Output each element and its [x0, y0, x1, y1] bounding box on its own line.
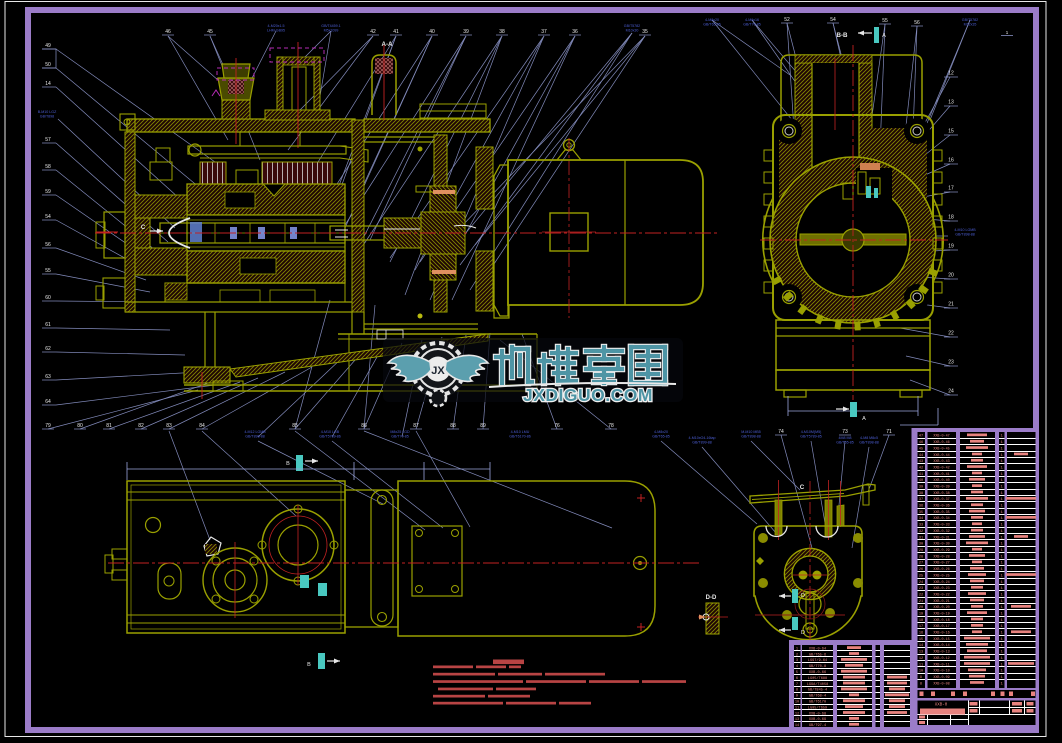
- svg-text:4-M10xO4-16tap: 4-M10xO4-16tap: [689, 436, 716, 440]
- svg-text:63: 63: [45, 374, 51, 380]
- svg-text:55: 55: [882, 18, 888, 24]
- svg-text:55: 55: [45, 268, 51, 274]
- svg-text:XXB-0-36: XXB-0-36: [933, 505, 949, 509]
- svg-text:4: 4: [796, 665, 798, 669]
- svg-text:JX: JX: [431, 365, 445, 377]
- svg-text:XXB-0-64: XXB-0-64: [809, 647, 826, 651]
- svg-text:4-M10 LMU: 4-M10 LMU: [511, 430, 530, 434]
- svg-text:XXB-0-35: XXB-0-35: [933, 511, 949, 515]
- svg-text:76: 76: [554, 423, 560, 429]
- svg-text:M8x25 LGD: M8x25 LGD: [390, 430, 410, 434]
- svg-text:43: 43: [919, 460, 923, 464]
- svg-text:14: 14: [795, 724, 799, 728]
- svg-text:84: 84: [199, 423, 205, 429]
- svg-text:86: 86: [361, 423, 367, 429]
- svg-text:GB/T898: GB/T898: [40, 115, 54, 119]
- svg-text:XXB-0-66: XXB-0-66: [809, 671, 826, 675]
- svg-text:XXB-0-28: XXB-0-28: [933, 555, 949, 559]
- svg-text:GB/T70-85: GB/T70-85: [391, 435, 409, 439]
- svg-text:24: 24: [948, 389, 954, 395]
- svg-text:XXB-0-37: XXB-0-37: [933, 498, 949, 502]
- svg-text:XXB-0-17: XXB-0-17: [933, 625, 949, 629]
- svg-text:GB/T97-4: GB/T97-4: [809, 723, 826, 728]
- svg-text:4M8 M8: 4M8 M8: [839, 436, 852, 440]
- svg-text:5: 5: [796, 671, 798, 675]
- svg-text:GB/T65-6: GB/T65-6: [809, 652, 826, 657]
- svg-text:GB/T5789-86: GB/T5789-86: [319, 435, 341, 439]
- svg-text:D: D: [801, 630, 805, 636]
- svg-text:71: 71: [886, 429, 892, 435]
- svg-text:LG9A/T4058: LG9A/T4058: [807, 682, 829, 687]
- svg-text:XXB-0-40: XXB-0-40: [933, 479, 949, 483]
- svg-text:GB/T5789-85: GB/T5789-85: [800, 435, 822, 439]
- svg-text:XXB-0-19: XXB-0-19: [933, 613, 949, 617]
- svg-text:44: 44: [919, 454, 923, 458]
- svg-text:GB/T70-8: GB/T70-8: [809, 664, 826, 669]
- svg-text:46: 46: [919, 441, 923, 445]
- svg-text:60: 60: [45, 295, 51, 301]
- svg-text:79: 79: [45, 423, 51, 429]
- svg-text:XXB-0-24: XXB-0-24: [933, 581, 949, 585]
- svg-text:GB/T65-85: GB/T65-85: [703, 23, 721, 27]
- svg-text:XXB-0-23: XXB-0-23: [933, 587, 949, 591]
- svg-text:14: 14: [919, 644, 923, 648]
- svg-text:80: 80: [77, 423, 83, 429]
- svg-text:28: 28: [919, 555, 923, 559]
- svg-text:XXB-0-25: XXB-0-25: [933, 574, 949, 578]
- svg-text:GB/T4459.1: GB/T4459.1: [321, 24, 340, 28]
- svg-text:B-M10 LGZ: B-M10 LGZ: [38, 110, 57, 114]
- svg-text:XXB-0-15: XXB-0-15: [933, 638, 949, 642]
- svg-text:2: 2: [796, 653, 798, 657]
- svg-text:30: 30: [919, 543, 923, 547]
- svg-text:LHM-GB95: LHM-GB95: [267, 29, 285, 33]
- svg-text:59: 59: [45, 189, 51, 195]
- svg-text:62: 62: [45, 346, 51, 352]
- svg-text:13: 13: [919, 651, 923, 655]
- svg-text:27: 27: [919, 562, 923, 566]
- svg-text:XXB-0-10: XXB-0-10: [933, 670, 949, 674]
- svg-text:12: 12: [919, 657, 923, 661]
- svg-text:46: 46: [165, 29, 171, 35]
- svg-text:XXB-0-18: XXB-0-18: [933, 619, 949, 623]
- svg-text:19: 19: [948, 244, 954, 250]
- svg-text:XXB-0-20: XXB-0-20: [933, 606, 949, 610]
- svg-text:25: 25: [919, 574, 923, 578]
- svg-text:12: 12: [948, 71, 954, 77]
- svg-text:18: 18: [919, 619, 923, 623]
- svg-text:D: D: [801, 593, 805, 599]
- svg-text:10: 10: [795, 701, 799, 705]
- svg-text:16: 16: [948, 158, 954, 164]
- svg-text:B: B: [307, 662, 311, 668]
- svg-text:73: 73: [842, 429, 848, 435]
- svg-text:56: 56: [914, 20, 920, 26]
- svg-text:4-M8x20: 4-M8x20: [705, 18, 719, 22]
- svg-text:XXB-0-26: XXB-0-26: [933, 568, 949, 572]
- svg-text:23: 23: [919, 587, 923, 591]
- svg-text:GB/T898-88: GB/T898-88: [245, 435, 265, 439]
- svg-text:C: C: [800, 484, 805, 491]
- svg-text:GB/T65-85: GB/T65-85: [836, 441, 854, 445]
- svg-text:35: 35: [642, 29, 648, 35]
- svg-text:M-M10 MB5: M-M10 MB5: [741, 430, 761, 434]
- svg-text:12: 12: [795, 712, 799, 716]
- svg-text:41: 41: [393, 29, 399, 35]
- svg-text:XXB-0-34: XXB-0-34: [933, 517, 949, 521]
- svg-text:XXB-0-47: XXB-0-47: [933, 435, 949, 439]
- svg-text:24: 24: [919, 581, 923, 585]
- svg-text:JXDIGUO.COM: JXDIGUO.COM: [523, 385, 653, 405]
- svg-text:26: 26: [919, 568, 923, 572]
- svg-text:4-M6x16: 4-M6x16: [745, 18, 759, 22]
- svg-text:22: 22: [919, 594, 923, 598]
- svg-text:20: 20: [948, 273, 954, 279]
- svg-text:18: 18: [948, 215, 954, 221]
- svg-text:4-M10 LGB: 4-M10 LGB: [321, 430, 340, 434]
- svg-text:GB/T68-4: GB/T68-4: [809, 694, 826, 699]
- svg-text:22: 22: [948, 331, 954, 337]
- svg-text:88: 88: [450, 423, 456, 429]
- svg-text:GB/T898-88: GB/T898-88: [741, 435, 761, 439]
- svg-text:B-B: B-B: [837, 32, 849, 39]
- svg-text:21: 21: [919, 600, 923, 604]
- svg-text:6: 6: [796, 677, 798, 681]
- svg-text:37: 37: [919, 498, 923, 502]
- svg-text:29: 29: [919, 549, 923, 553]
- svg-text:4-M20x1.5: 4-M20x1.5: [268, 24, 285, 28]
- svg-text:XXB-0-21: XXB-0-21: [933, 600, 949, 604]
- svg-text:21: 21: [948, 302, 954, 308]
- svg-text:16: 16: [919, 632, 923, 636]
- svg-text:XXB-0-45: XXB-0-45: [933, 447, 949, 451]
- svg-text:GB/T6170-86: GB/T6170-86: [509, 435, 531, 439]
- svg-text:32: 32: [919, 530, 923, 534]
- svg-text:83: 83: [166, 423, 172, 429]
- svg-text:10: 10: [919, 670, 923, 674]
- svg-text:C: C: [141, 225, 146, 231]
- svg-text:45: 45: [919, 447, 923, 451]
- svg-text:XXB-0-46: XXB-0-46: [933, 441, 949, 445]
- svg-text:42: 42: [370, 29, 376, 35]
- svg-text:LG97/9-64: LG97/9-64: [808, 658, 827, 663]
- svg-text:9: 9: [796, 695, 798, 699]
- svg-text:GB/T5782: GB/T5782: [962, 18, 978, 22]
- svg-text:GB/T70-85: GB/T70-85: [743, 23, 761, 27]
- svg-text:XXB-0-41: XXB-0-41: [933, 473, 949, 477]
- svg-text:A-A: A-A: [382, 41, 394, 48]
- svg-text:D-D: D-D: [706, 595, 717, 601]
- svg-text:36: 36: [919, 505, 923, 509]
- svg-text:87: 87: [413, 423, 419, 429]
- svg-text:15: 15: [919, 638, 923, 642]
- svg-text:45: 45: [207, 29, 213, 35]
- svg-text:XXB-0-44: XXB-0-44: [933, 454, 949, 458]
- svg-text:XXB-0-42: XXB-0-42: [933, 466, 949, 470]
- svg-text:XXB-0-12: XXB-0-12: [933, 657, 949, 661]
- svg-text:36: 36: [572, 29, 578, 35]
- svg-text:49: 49: [45, 43, 51, 49]
- svg-text:XXB-0-14: XXB-0-14: [933, 644, 949, 648]
- svg-text:38: 38: [499, 29, 505, 35]
- svg-text:19: 19: [919, 613, 923, 617]
- svg-text:A: A: [862, 416, 866, 422]
- svg-text:57: 57: [45, 137, 51, 143]
- svg-text:GB/T898-88: GB/T898-88: [955, 233, 975, 237]
- svg-text:XXB-0-69: XXB-0-69: [809, 718, 826, 722]
- svg-text:20: 20: [919, 606, 923, 610]
- svg-text:52: 52: [784, 17, 790, 23]
- svg-text:40: 40: [429, 29, 435, 35]
- svg-text:31: 31: [919, 536, 923, 540]
- svg-text:41: 41: [919, 473, 923, 477]
- svg-text:GB/T898-88: GB/T898-88: [859, 441, 879, 445]
- svg-text:89: 89: [480, 423, 486, 429]
- svg-text:9: 9: [920, 676, 922, 680]
- svg-text:XXB-0-30: XXB-0-30: [933, 543, 949, 547]
- svg-text:13: 13: [795, 718, 799, 722]
- svg-text:GB/T5782: GB/T5782: [624, 24, 640, 28]
- svg-text:GB/T845-4: GB/T845-4: [808, 688, 827, 693]
- svg-text:54: 54: [45, 214, 51, 220]
- svg-text:M5x1099: M5x1099: [324, 29, 339, 33]
- svg-text:56: 56: [45, 242, 51, 248]
- svg-text:B: B: [286, 461, 290, 467]
- svg-text:17: 17: [919, 625, 923, 629]
- svg-text:4-M12 LGMB: 4-M12 LGMB: [244, 430, 266, 434]
- svg-text:4-M10M(M5): 4-M10M(M5): [801, 430, 822, 434]
- svg-text:8: 8: [796, 689, 798, 693]
- svg-text:XXB-0-38: XXB-0-38: [933, 492, 949, 496]
- svg-text:37: 37: [541, 29, 547, 35]
- svg-text:38: 38: [919, 492, 923, 496]
- svg-text:XXB-0-13: XXB-0-13: [933, 651, 949, 655]
- svg-text:47: 47: [919, 435, 923, 439]
- svg-text:A: A: [882, 33, 886, 39]
- svg-text:XXB-0-08: XXB-0-08: [933, 682, 949, 686]
- svg-text:39: 39: [463, 29, 469, 35]
- svg-text:42: 42: [919, 466, 923, 470]
- svg-text:XXB-0-16: XXB-0-16: [933, 632, 949, 636]
- svg-text:50: 50: [45, 62, 51, 68]
- svg-text:LG05/T688: LG05/T688: [808, 676, 827, 681]
- svg-text:XXB-0-68: XXB-0-68: [809, 712, 826, 716]
- svg-text:39: 39: [919, 486, 923, 490]
- svg-text:14: 14: [45, 81, 51, 87]
- svg-text:XXB-0-39: XXB-0-39: [933, 486, 949, 490]
- svg-text:LG05/T659: LG05/T659: [808, 705, 827, 710]
- svg-text:15: 15: [948, 129, 954, 135]
- svg-text:GB/T899-88: GB/T899-88: [692, 441, 712, 445]
- svg-text:GB/T6170: GB/T6170: [809, 700, 826, 705]
- svg-text:78: 78: [608, 423, 614, 429]
- svg-text:XXB-0-43: XXB-0-43: [933, 460, 949, 464]
- svg-text:33: 33: [919, 524, 923, 528]
- svg-text:8: 8: [920, 682, 922, 686]
- svg-text:M12x35: M12x35: [964, 23, 977, 27]
- svg-text:XXB-0: XXB-0: [935, 704, 948, 708]
- svg-text:74: 74: [778, 429, 784, 435]
- svg-text:M10x30: M10x30: [626, 29, 639, 33]
- svg-text:3: 3: [796, 659, 798, 663]
- svg-text:7: 7: [796, 683, 798, 687]
- svg-text:XXB-0-09: XXB-0-09: [933, 676, 949, 680]
- svg-text:64: 64: [45, 399, 51, 405]
- svg-text:4-M8x20: 4-M8x20: [654, 430, 668, 434]
- svg-text:82: 82: [138, 423, 144, 429]
- svg-text:XXB-0-29: XXB-0-29: [933, 549, 949, 553]
- svg-text:40: 40: [919, 479, 923, 483]
- svg-text:XXB-0-11: XXB-0-11: [933, 663, 949, 667]
- svg-text:11: 11: [919, 663, 923, 667]
- svg-text:4-M8 M8c5: 4-M8 M8c5: [860, 436, 878, 440]
- svg-text:34: 34: [919, 517, 923, 521]
- svg-text:XXB-0-33: XXB-0-33: [933, 524, 949, 528]
- svg-text:17: 17: [948, 186, 954, 192]
- svg-text:4-M10 LGMB: 4-M10 LGMB: [954, 228, 976, 232]
- svg-text:XXB-0-27: XXB-0-27: [933, 562, 949, 566]
- svg-text:81: 81: [106, 423, 112, 429]
- svg-text:85: 85: [292, 423, 298, 429]
- svg-text:XXB-0-31: XXB-0-31: [933, 536, 949, 540]
- svg-text:61: 61: [45, 322, 51, 328]
- svg-text:XXB-0-32: XXB-0-32: [933, 530, 949, 534]
- svg-text:54: 54: [830, 17, 836, 23]
- svg-text:XXB-0-22: XXB-0-22: [933, 594, 949, 598]
- svg-text:GB/T65-85: GB/T65-85: [652, 435, 670, 439]
- svg-text:23: 23: [948, 360, 954, 366]
- svg-text:13: 13: [948, 100, 954, 106]
- svg-text:11: 11: [795, 706, 799, 710]
- svg-text:35: 35: [919, 511, 923, 515]
- svg-text:1: 1: [796, 647, 798, 651]
- svg-text:58: 58: [45, 164, 51, 170]
